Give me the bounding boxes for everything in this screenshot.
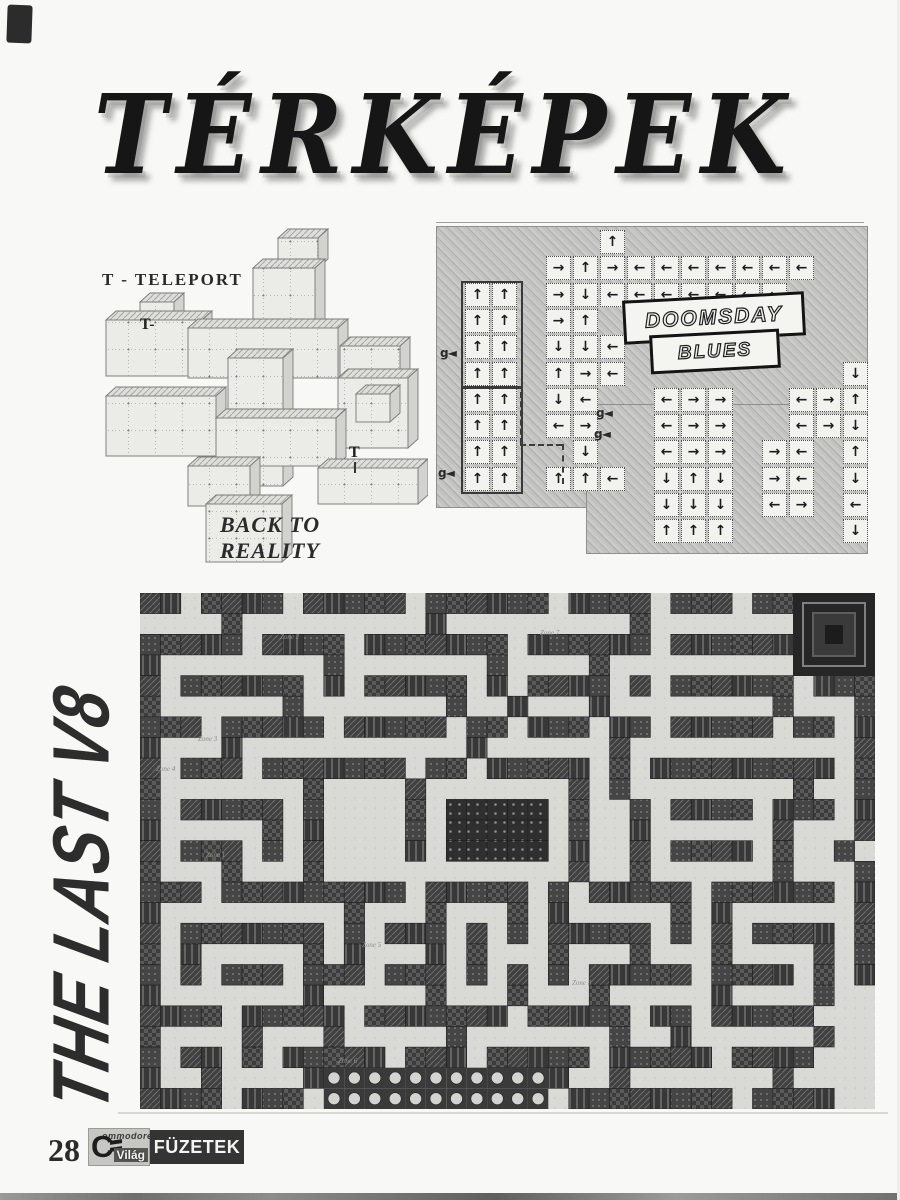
map-block xyxy=(222,717,242,738)
map-block xyxy=(303,923,323,944)
arrow-cell: ↑ xyxy=(546,362,571,386)
map-block xyxy=(467,738,487,759)
map-block xyxy=(242,1088,262,1109)
map-block xyxy=(324,634,344,655)
arrow-cell: ↓ xyxy=(573,283,598,307)
map-block xyxy=(324,1006,344,1027)
barrel-icon xyxy=(430,1093,442,1105)
map-block xyxy=(548,1068,568,1089)
arrow-cell: ↓ xyxy=(573,440,598,464)
map-block xyxy=(242,923,262,944)
map-block xyxy=(405,634,425,655)
map-block xyxy=(487,882,507,903)
arrow-cell: ← xyxy=(573,388,598,412)
map-block xyxy=(303,861,323,882)
map-block xyxy=(405,820,425,841)
map-block xyxy=(140,841,160,862)
map-block xyxy=(508,758,528,779)
map-block xyxy=(222,738,242,759)
barrel-icon xyxy=(532,1072,544,1084)
map-block xyxy=(446,882,466,903)
route-dashed-line xyxy=(520,444,562,446)
map-block xyxy=(201,923,221,944)
barrel-icon xyxy=(491,1093,503,1105)
map-block xyxy=(263,758,283,779)
map-block xyxy=(630,965,650,986)
map-block xyxy=(222,758,242,779)
map-block xyxy=(732,841,752,862)
map-block xyxy=(140,882,160,903)
map-block xyxy=(855,738,875,759)
arrow-cell: ↓ xyxy=(654,493,679,517)
map-block xyxy=(753,634,773,655)
arrow-cell: ↓ xyxy=(843,519,868,543)
map-block xyxy=(467,965,487,986)
map-block xyxy=(855,882,875,903)
map-block xyxy=(467,593,487,614)
map-block xyxy=(610,1047,630,1068)
map-block xyxy=(589,676,609,697)
map-block xyxy=(773,841,793,862)
map-block xyxy=(650,1006,670,1027)
arrow-cell: ↑ xyxy=(573,467,598,491)
map-block xyxy=(793,799,813,820)
map-block xyxy=(569,717,589,738)
map-block xyxy=(671,882,691,903)
map-block xyxy=(548,965,568,986)
arrow-cell: → xyxy=(789,493,814,517)
map-block xyxy=(263,799,283,820)
map-block xyxy=(242,676,262,697)
map-block xyxy=(222,593,242,614)
map-block xyxy=(814,758,834,779)
map-block xyxy=(242,799,262,820)
map-block xyxy=(201,1088,221,1109)
map-block xyxy=(263,1088,283,1109)
map-block xyxy=(569,861,589,882)
map-block xyxy=(222,799,242,820)
map-block xyxy=(630,1047,650,1068)
arrow-cell: ← xyxy=(654,388,679,412)
map-block xyxy=(773,861,793,882)
map-block xyxy=(691,676,711,697)
arrow-cell: → xyxy=(546,256,571,280)
arrow-cell: ↓ xyxy=(708,493,733,517)
map-block xyxy=(283,758,303,779)
map-block xyxy=(773,634,793,655)
map-block xyxy=(691,758,711,779)
map-block xyxy=(426,614,446,635)
arrow-cell: → xyxy=(762,440,787,464)
map-block xyxy=(548,717,568,738)
map-block xyxy=(712,944,732,965)
map-block xyxy=(242,965,262,986)
map-block xyxy=(773,593,793,614)
map-block xyxy=(569,1088,589,1109)
map-block xyxy=(855,676,875,697)
g-marker-label: g◄ xyxy=(440,346,456,360)
zone-label: Zone 4 xyxy=(156,765,176,773)
iso-block-top xyxy=(106,311,212,320)
map-block xyxy=(385,965,405,986)
map-block xyxy=(140,1006,160,1027)
arrow-cell: ↑ xyxy=(546,467,571,491)
map-block xyxy=(446,820,466,841)
map-block xyxy=(160,717,180,738)
map-block xyxy=(303,1068,323,1089)
map-block xyxy=(712,903,732,924)
map-title-back-to-reality: BACK TO REALITY xyxy=(220,512,320,564)
map-block xyxy=(140,820,160,841)
map-border-line xyxy=(436,222,864,223)
map-block xyxy=(385,758,405,779)
map-block xyxy=(589,882,609,903)
map-block xyxy=(548,882,568,903)
map-block xyxy=(569,841,589,862)
map-block xyxy=(426,676,446,697)
g-marker-label: g◄ xyxy=(594,427,610,441)
map-block xyxy=(712,758,732,779)
zone-label: Zone 6 xyxy=(338,1057,358,1065)
map-block xyxy=(201,758,221,779)
map-block xyxy=(671,1006,691,1027)
arrow-cell: ↑ xyxy=(654,519,679,543)
map-block xyxy=(610,1068,630,1089)
map-block xyxy=(610,923,630,944)
map-block xyxy=(528,1006,548,1027)
map-block xyxy=(528,717,548,738)
map-block xyxy=(181,882,201,903)
map-block xyxy=(528,593,548,614)
arrow-cell: → xyxy=(681,388,706,412)
map-block xyxy=(610,1088,630,1109)
map-block xyxy=(426,758,446,779)
map-block xyxy=(773,799,793,820)
map-block xyxy=(426,593,446,614)
map-block xyxy=(773,820,793,841)
map-block xyxy=(671,1047,691,1068)
arrow-cell: ← xyxy=(654,440,679,464)
map-block xyxy=(671,676,691,697)
map-block xyxy=(181,1047,201,1068)
vilag-wordmark: Világ xyxy=(114,1148,148,1162)
map-block xyxy=(732,634,752,655)
map-block xyxy=(140,1088,160,1109)
map-block xyxy=(773,1006,793,1027)
map-block xyxy=(589,655,609,676)
map-block xyxy=(140,944,160,965)
map-block xyxy=(222,861,242,882)
map-block xyxy=(508,1047,528,1068)
map-block xyxy=(855,965,875,986)
arrow-cell: ← xyxy=(654,414,679,438)
arrow-cell: → xyxy=(708,440,733,464)
map-block xyxy=(385,593,405,614)
map-block xyxy=(528,799,548,820)
map-block xyxy=(446,841,466,862)
iso-block-side xyxy=(408,369,418,448)
v8-map-graphic: Zone 2Zone 7Zone 3Zone 4Zone 1Zone 5Zone… xyxy=(140,593,875,1109)
map-block xyxy=(630,634,650,655)
map-block xyxy=(263,1006,283,1027)
zone-label: Zone 8 xyxy=(572,979,592,987)
map-block xyxy=(712,1006,732,1027)
map-block xyxy=(303,634,323,655)
zone-label: Zone 5 xyxy=(362,941,382,949)
map-block xyxy=(610,593,630,614)
doomsday-blues-map: ↑→↑→←←←←←←←↑↑→↓←←←←←←←↑↑→↑←↑↑↓↓←↑↑↑→←↓↑↑… xyxy=(436,222,872,558)
map-block xyxy=(303,965,323,986)
map-block xyxy=(283,676,303,697)
map-block xyxy=(446,593,466,614)
barrel-icon xyxy=(348,1072,360,1084)
map-block xyxy=(630,841,650,862)
barrel-icon xyxy=(451,1093,463,1105)
map-block xyxy=(222,614,242,635)
map-block xyxy=(365,593,385,614)
map-block xyxy=(467,882,487,903)
map-block xyxy=(671,965,691,986)
arrow-cell: → xyxy=(708,414,733,438)
map-block xyxy=(181,676,201,697)
page-number: 28 xyxy=(48,1132,80,1169)
commodore-flag-icon xyxy=(110,1139,122,1145)
map-block xyxy=(303,985,323,1006)
map-block xyxy=(753,965,773,986)
map-block xyxy=(140,676,160,697)
map-block xyxy=(467,634,487,655)
map-block xyxy=(405,1006,425,1027)
map-block xyxy=(773,696,793,717)
map-block xyxy=(487,1047,507,1068)
map-block xyxy=(426,985,446,1006)
map-block xyxy=(753,717,773,738)
iso-block-top xyxy=(253,259,325,268)
map-block xyxy=(814,1026,834,1047)
arrow-cell: ← xyxy=(789,414,814,438)
map-block xyxy=(365,1006,385,1027)
map-block xyxy=(589,1088,609,1109)
map-block xyxy=(426,882,446,903)
map-block xyxy=(467,820,487,841)
map-block xyxy=(691,593,711,614)
map-block xyxy=(671,923,691,944)
map-block xyxy=(242,1026,262,1047)
map-block xyxy=(528,1047,548,1068)
map-block xyxy=(528,676,548,697)
map-block xyxy=(303,820,323,841)
magazine-page: TÉRKÉPEK T - TELEPORT T- T BACK TO RE xyxy=(0,0,900,1200)
map-block xyxy=(467,1006,487,1027)
fuzetek-logo-box: FÜZETEK xyxy=(150,1130,244,1164)
map-block xyxy=(753,1006,773,1027)
map-block xyxy=(405,799,425,820)
map-block xyxy=(773,1047,793,1068)
map-block xyxy=(140,634,160,655)
barrel-icon xyxy=(532,1093,544,1105)
map-block xyxy=(589,696,609,717)
map-block xyxy=(303,758,323,779)
iso-block-top xyxy=(106,387,226,396)
map-block xyxy=(732,1006,752,1027)
map-block xyxy=(344,903,364,924)
map-block xyxy=(610,1006,630,1027)
map-block xyxy=(650,965,670,986)
iso-block-top xyxy=(228,349,293,358)
arrow-cell: ← xyxy=(600,335,625,359)
map-block xyxy=(814,676,834,697)
map-block xyxy=(671,1088,691,1109)
map-block xyxy=(569,799,589,820)
barrel-icon xyxy=(328,1093,340,1105)
map-block xyxy=(610,1026,630,1047)
map-block xyxy=(508,696,528,717)
page-title: TÉRKÉPEK xyxy=(50,71,840,200)
map-block xyxy=(487,1006,507,1027)
map-block xyxy=(405,779,425,800)
map-block xyxy=(446,799,466,820)
map-block xyxy=(405,923,425,944)
map-block xyxy=(671,799,691,820)
map-block xyxy=(732,882,752,903)
map-block xyxy=(303,779,323,800)
iso-block-top xyxy=(206,495,292,504)
map-block xyxy=(773,1088,793,1109)
arrow-cell: ↓ xyxy=(708,467,733,491)
map-block xyxy=(732,799,752,820)
map-block xyxy=(385,717,405,738)
map-block xyxy=(793,882,813,903)
map-block xyxy=(855,758,875,779)
map-block xyxy=(712,634,732,655)
zone-label: Zone 7 xyxy=(540,629,560,637)
map-title-line2: REALITY xyxy=(220,538,320,564)
map-block xyxy=(303,841,323,862)
map-block xyxy=(610,965,630,986)
map-block xyxy=(487,820,507,841)
map-block xyxy=(671,1026,691,1047)
map-block xyxy=(222,965,242,986)
map-block xyxy=(385,1006,405,1027)
map-block xyxy=(814,799,834,820)
map-block xyxy=(773,882,793,903)
arrow-cell: ↓ xyxy=(654,467,679,491)
map-block xyxy=(344,882,364,903)
map-block xyxy=(140,1047,160,1068)
map-block xyxy=(548,676,568,697)
arrow-cell: ↑ xyxy=(681,467,706,491)
map-block xyxy=(793,779,813,800)
map-block xyxy=(487,799,507,820)
barrel-icon xyxy=(512,1072,524,1084)
arrow-cell: ← xyxy=(600,362,625,386)
map-block xyxy=(773,965,793,986)
map-block xyxy=(630,799,650,820)
map-block xyxy=(814,985,834,1006)
map-block xyxy=(834,676,854,697)
map-block xyxy=(303,799,323,820)
arrow-cell: → xyxy=(600,256,625,280)
map-block xyxy=(712,965,732,986)
map-block xyxy=(630,923,650,944)
map-block xyxy=(589,985,609,1006)
map-block xyxy=(589,634,609,655)
map-block xyxy=(732,676,752,697)
map-block xyxy=(222,676,242,697)
zone-label: Zone 2 xyxy=(280,633,300,641)
map-block xyxy=(324,758,344,779)
back-to-reality-map: T - TELEPORT T- T BACK TO REALITY xyxy=(88,228,428,568)
teleport-label-a: T- xyxy=(140,316,155,334)
map-block xyxy=(528,634,548,655)
map-block xyxy=(140,738,160,759)
map-block xyxy=(691,841,711,862)
teleport-label-b: T xyxy=(349,444,360,462)
map-block xyxy=(405,841,425,862)
map-block xyxy=(222,923,242,944)
map-block xyxy=(303,593,323,614)
map-block xyxy=(650,882,670,903)
map-block xyxy=(385,923,405,944)
arrow-cell: ← xyxy=(627,256,652,280)
map-block xyxy=(487,676,507,697)
map-block xyxy=(446,758,466,779)
map-block xyxy=(303,717,323,738)
map-block xyxy=(528,820,548,841)
map-block xyxy=(814,965,834,986)
map-block xyxy=(773,676,793,697)
map-block xyxy=(181,944,201,965)
map-block xyxy=(365,634,385,655)
map-block xyxy=(712,985,732,1006)
map-block xyxy=(283,717,303,738)
map-block xyxy=(671,903,691,924)
arrow-cell: ← xyxy=(681,256,706,280)
map-block xyxy=(630,861,650,882)
route-dashed-line xyxy=(520,392,522,444)
map-block xyxy=(324,655,344,676)
map-block xyxy=(753,882,773,903)
map-block xyxy=(650,758,670,779)
map-block xyxy=(630,820,650,841)
map-block xyxy=(181,965,201,986)
map-block xyxy=(283,882,303,903)
map-block xyxy=(303,944,323,965)
arrow-cell: ← xyxy=(600,467,625,491)
map-block xyxy=(508,593,528,614)
map-block xyxy=(405,965,425,986)
map-block xyxy=(446,1026,466,1047)
doomsday-logo-line2: BLUES xyxy=(677,339,752,365)
map-block xyxy=(201,1068,221,1089)
map-block xyxy=(263,593,283,614)
arrow-cell: → xyxy=(546,283,571,307)
map-block xyxy=(385,634,405,655)
last-v8-map: Zone 2Zone 7Zone 3Zone 4Zone 1Zone 5Zone… xyxy=(140,593,875,1109)
map-block xyxy=(691,634,711,655)
map-block xyxy=(201,799,221,820)
iso-block-front xyxy=(106,396,216,456)
map-block xyxy=(487,593,507,614)
map-block xyxy=(712,923,732,944)
map-block xyxy=(712,593,732,614)
map-block xyxy=(610,738,630,759)
arrow-cell: ← xyxy=(789,256,814,280)
map-block xyxy=(610,634,630,655)
map-block xyxy=(385,882,405,903)
cluster-frame xyxy=(461,386,523,494)
barrel-icon xyxy=(471,1072,483,1084)
